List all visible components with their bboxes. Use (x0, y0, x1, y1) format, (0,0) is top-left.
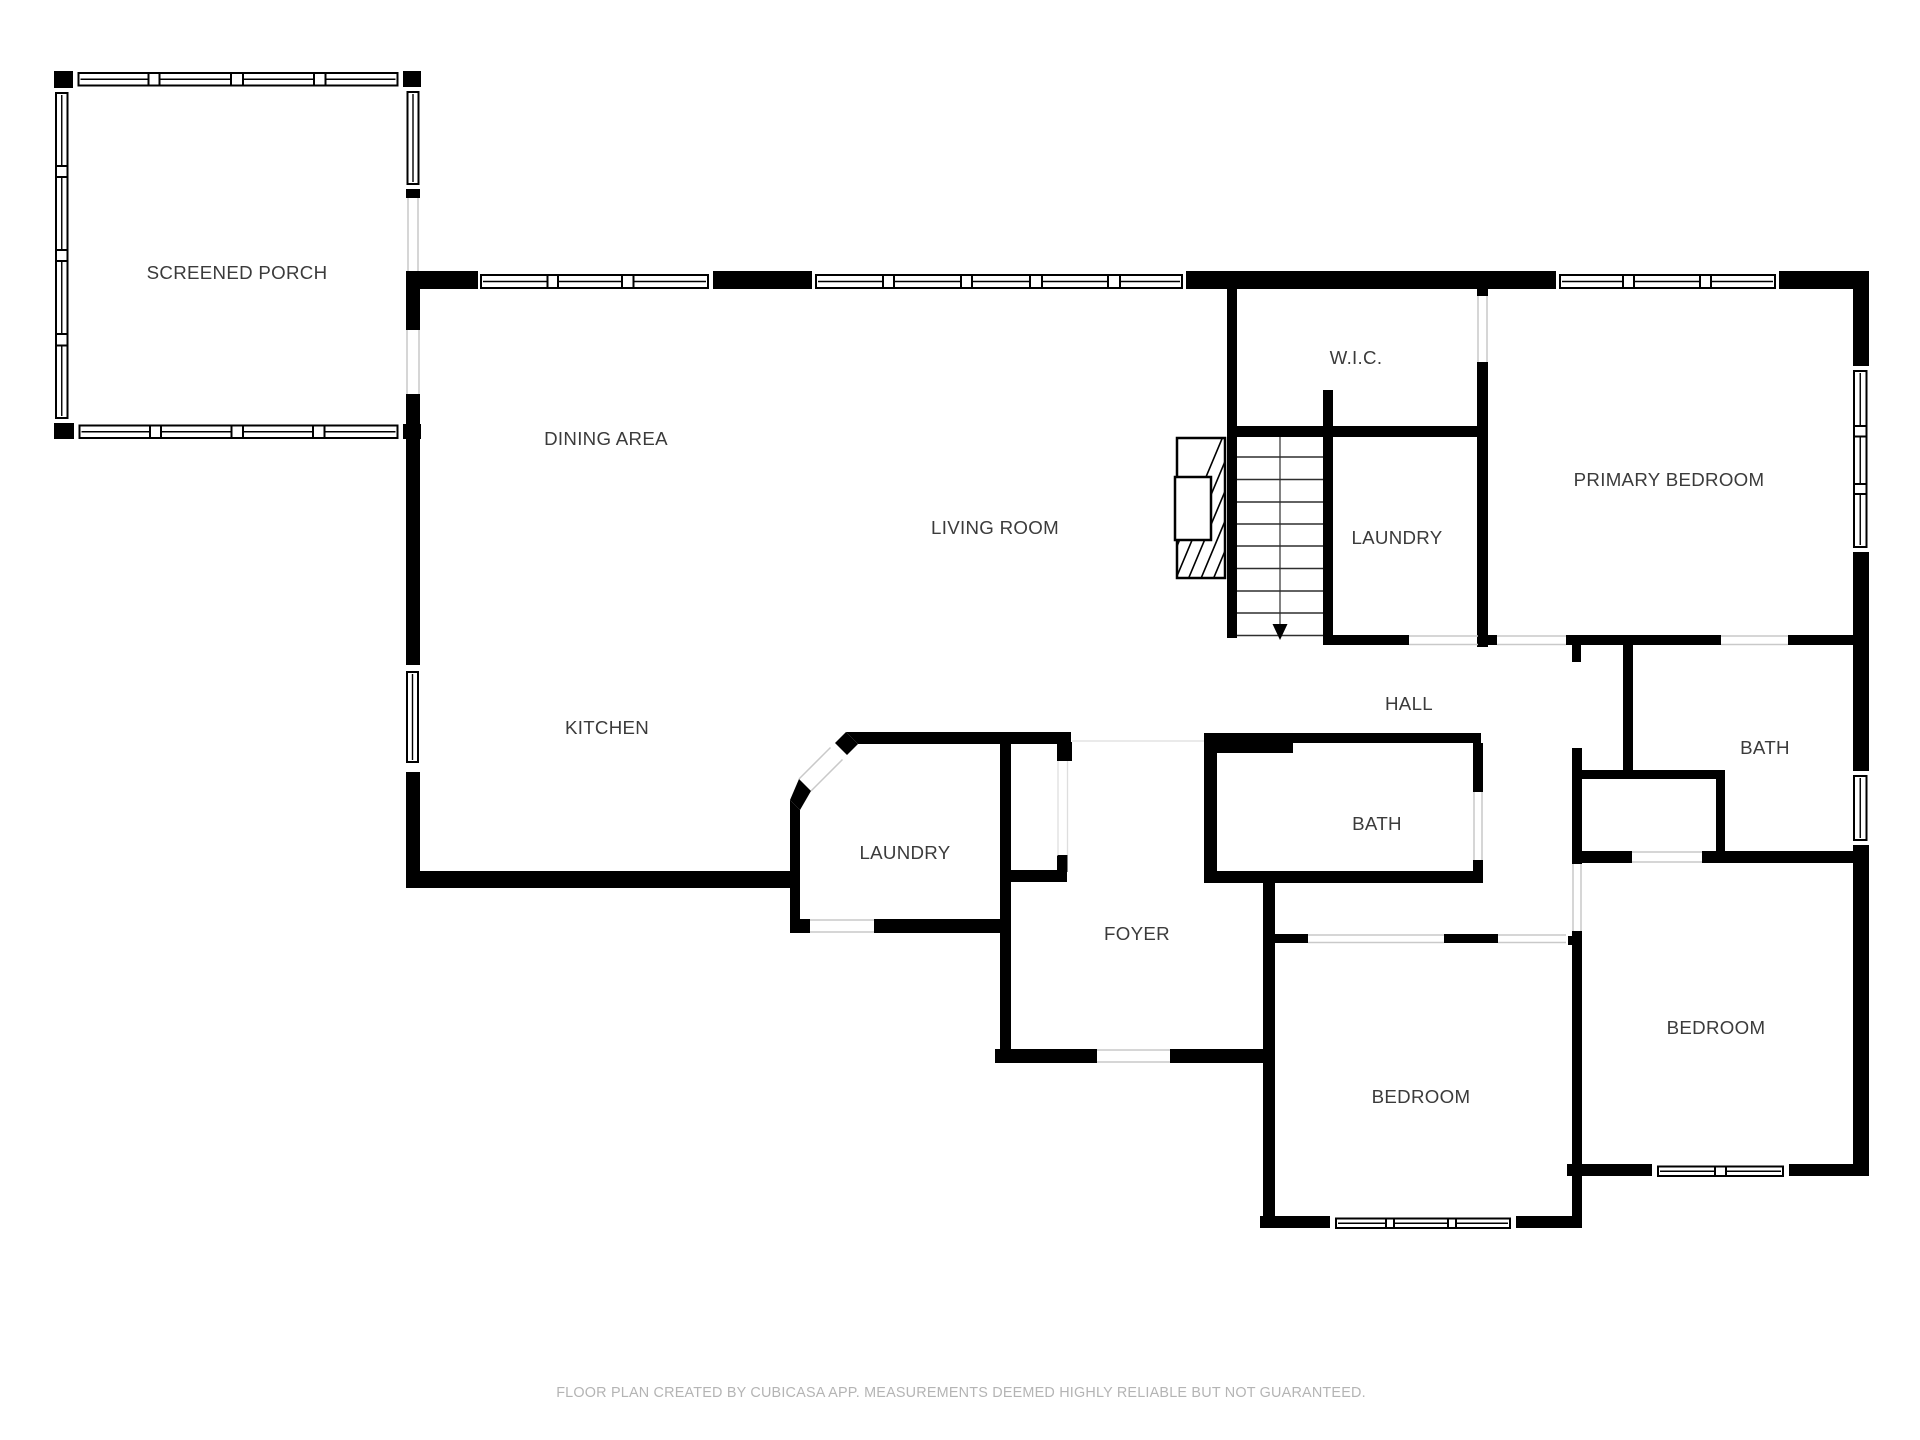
svg-text:PRIMARY BEDROOM: PRIMARY BEDROOM (1574, 469, 1765, 490)
svg-text:LAUNDRY: LAUNDRY (859, 842, 950, 863)
svg-text:LAUNDRY: LAUNDRY (1351, 527, 1442, 548)
svg-text:DINING AREA: DINING AREA (544, 428, 668, 449)
svg-text:BEDROOM: BEDROOM (1667, 1017, 1766, 1038)
svg-text:BEDROOM: BEDROOM (1372, 1086, 1471, 1107)
svg-text:SCREENED PORCH: SCREENED PORCH (147, 262, 328, 283)
svg-text:BATH: BATH (1740, 737, 1790, 758)
svg-text:FOYER: FOYER (1104, 923, 1170, 944)
svg-text:LIVING ROOM: LIVING ROOM (931, 517, 1059, 538)
svg-text:W.I.C.: W.I.C. (1330, 347, 1383, 368)
svg-text:FLOOR PLAN CREATED BY CUBICASA: FLOOR PLAN CREATED BY CUBICASA APP. MEAS… (556, 1385, 1366, 1401)
svg-text:HALL: HALL (1385, 693, 1433, 714)
svg-text:KITCHEN: KITCHEN (565, 717, 649, 738)
svg-text:BATH: BATH (1352, 813, 1402, 834)
